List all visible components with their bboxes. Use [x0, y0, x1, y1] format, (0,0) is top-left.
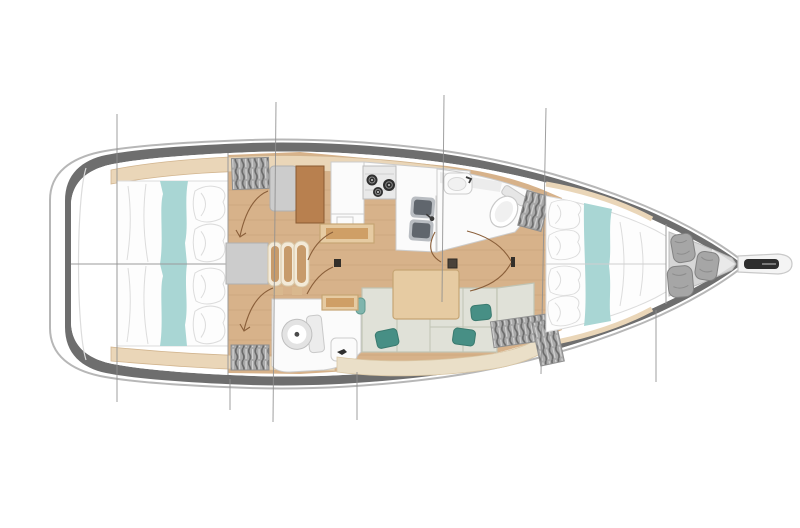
door-jamb	[511, 257, 515, 267]
pillow	[193, 268, 225, 304]
hanging-locker	[231, 157, 269, 189]
pillow	[193, 186, 225, 222]
fender-bag	[694, 250, 720, 281]
nav-cabinet	[270, 166, 297, 211]
pillow	[547, 265, 581, 297]
chart-table	[296, 166, 324, 223]
bed-runner-port	[160, 181, 188, 264]
boat-floorplan-canvas	[0, 0, 800, 528]
mast-step	[448, 259, 457, 268]
pillow	[193, 306, 225, 344]
pillow	[547, 229, 581, 261]
saloon-table	[393, 270, 459, 319]
fender-bag	[667, 265, 695, 298]
accent-pillow	[452, 328, 476, 347]
bed-runner-starboard	[160, 264, 187, 346]
galley-locker	[331, 162, 364, 228]
door-jamb	[334, 259, 341, 267]
aft-cabin-port	[117, 181, 228, 264]
floorplan-svg	[0, 0, 800, 528]
side-shelf	[322, 295, 358, 310]
nav-desk	[226, 243, 268, 284]
hanging-locker	[231, 345, 269, 370]
fender-bag	[670, 232, 697, 263]
pillow	[547, 198, 582, 231]
saloon-bench	[320, 224, 374, 243]
washbasin	[444, 173, 472, 194]
accent-pillow	[470, 304, 491, 321]
bowsprit	[738, 254, 792, 274]
stove-burner	[373, 187, 383, 197]
stove	[363, 166, 396, 199]
stove-burner	[383, 179, 395, 191]
pillow	[547, 295, 582, 328]
pillow	[193, 224, 225, 262]
stove-burner	[367, 175, 378, 186]
